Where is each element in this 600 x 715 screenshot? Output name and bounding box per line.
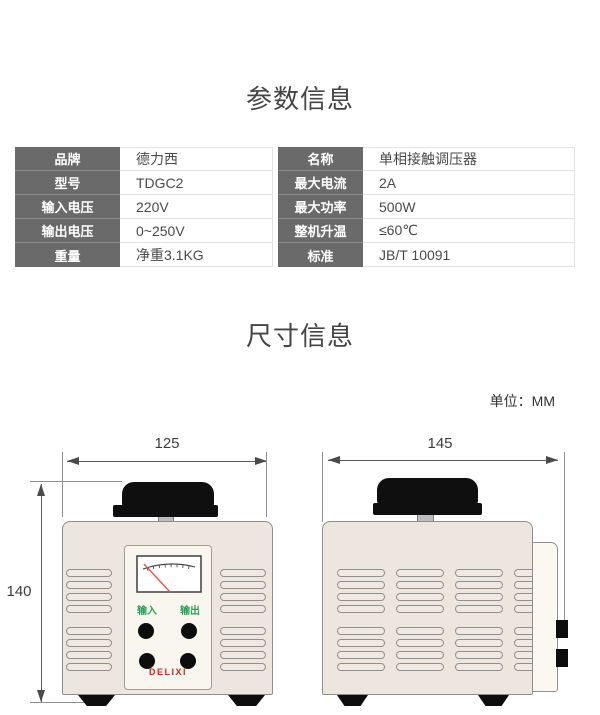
spec-label: 品牌 [15,147,120,171]
spec-value: 0~250V [120,219,273,243]
vent-slot [220,581,266,589]
spec-label: 型号 [15,171,120,195]
front-height-dim-label: 140 [2,583,36,600]
vent-slot [220,651,266,659]
spec-label: 重量 [15,243,120,267]
arrow-down-icon [37,690,45,702]
extension-line [266,452,267,517]
vent-slot [396,639,444,647]
vent-slot [337,593,385,601]
spec-value: ≤60℃ [363,219,575,243]
vent-slot [396,593,444,601]
vent-grid [337,569,385,671]
rear-terminal [556,649,568,667]
spec-table-right: 名称 单相接触调压器 最大电流 2A 最大功率 500W 整机升温 ≤60℃ 标… [278,147,575,267]
vent-slot [66,627,112,635]
vent-slot [514,593,532,601]
output-terminal-label: 输出 [174,602,206,617]
vent-slot [396,581,444,589]
vent-slot [337,663,385,671]
knob-flange [373,503,482,515]
vent-slot [396,605,444,613]
vent-slot [66,663,112,671]
vent-slot [396,651,444,659]
product-detail-page: 参数信息 品牌 德力西 型号 TDGC2 输入电压 220V 输出电压 0~25… [0,0,600,715]
vent-slot [455,639,503,647]
vent-slot [514,663,532,671]
table-row: 名称 单相接触调压器 [278,147,575,171]
vent-slot [337,605,385,613]
terminal-post [181,623,197,639]
brand-logo: DELIXI [124,667,212,677]
vent-slot [396,663,444,671]
arrow-left-icon [328,456,340,464]
extension-line [62,452,63,517]
vent-slot [66,581,112,589]
vent-slot [220,605,266,613]
spec-value: TDGC2 [120,171,273,195]
vent-slot [220,663,266,671]
vent-slot [66,593,112,601]
spec-label: 最大功率 [278,195,363,219]
device-foot [228,695,265,706]
vent-grid [396,569,444,671]
spec-value: JB/T 10091 [363,243,575,267]
vent-slot [455,663,503,671]
vent-slot [455,569,503,577]
vent-slot [514,639,532,647]
vent-slot [337,639,385,647]
vent-slot [220,639,266,647]
vent-grid [66,569,112,671]
spec-label: 输入电压 [15,195,120,219]
table-row: 品牌 德力西 [15,147,273,171]
vent-slot [66,639,112,647]
spec-value: 德力西 [120,147,273,171]
spec-value: 单相接触调压器 [363,147,575,171]
vent-slot [514,569,532,577]
knob-flange [113,505,218,517]
spec-label: 最大电流 [278,171,363,195]
spec-value: 220V [120,195,273,219]
dimension-line [328,460,558,461]
analog-meter [136,555,202,593]
table-row: 标准 JB/T 10091 [278,243,575,267]
vent-grid [514,569,532,671]
spec-label: 输出电压 [15,219,120,243]
vent-slot [514,651,532,659]
vent-slot [455,593,503,601]
extension-line [322,452,323,522]
vent-slot [514,605,532,613]
table-row: 型号 TDGC2 [15,171,273,195]
spec-value: 500W [363,195,575,219]
spec-label: 名称 [278,147,363,171]
dimensions-section-title: 尺寸信息 [0,316,600,353]
vent-slot [396,569,444,577]
dimension-line [67,461,267,462]
terminal-post [138,623,154,639]
spec-table-left: 品牌 德力西 型号 TDGC2 输入电压 220V 输出电压 0~250V 重量… [15,147,273,267]
extension-line [30,481,122,482]
vent-slot [455,627,503,635]
spec-label: 标准 [278,243,363,267]
vent-slot [66,605,112,613]
vent-slot [514,627,532,635]
rear-panel [531,542,558,692]
vent-slot [220,627,266,635]
spec-table: 品牌 德力西 型号 TDGC2 输入电压 220V 输出电压 0~250V 重量… [15,147,575,267]
spec-value: 净重3.1KG [120,243,273,267]
vent-slot [396,627,444,635]
knob [377,478,478,504]
side-depth-dim-label: 145 [410,435,470,452]
table-row: 最大电流 2A [278,171,575,195]
vent-slot [455,605,503,613]
input-terminal-label: 输入 [131,602,163,617]
vent-slot [337,581,385,589]
table-row: 整机升温 ≤60℃ [278,219,575,243]
vent-slot [66,569,112,577]
arrow-right-icon [546,456,558,464]
vent-slot [220,569,266,577]
spec-label: 整机升温 [278,219,363,243]
device-foot [478,695,509,706]
device-foot [337,695,368,706]
arrow-left-icon [67,457,79,465]
dimension-line [41,484,42,702]
vent-slot [514,581,532,589]
arrow-up-icon [37,484,45,496]
front-width-dim-label: 125 [137,435,197,452]
table-row: 输入电压 220V [15,195,273,219]
params-section-title: 参数信息 [0,79,600,116]
rear-terminal [556,620,568,638]
vent-slot [337,627,385,635]
knob [122,482,214,507]
meter-frame [137,556,201,592]
vent-slot [66,651,112,659]
vent-slot [455,651,503,659]
table-row: 重量 净重3.1KG [15,243,273,267]
extension-line [564,452,565,620]
unit-label: 单位：MM [490,391,555,411]
vent-grid [455,569,503,671]
table-row: 输出电压 0~250V [15,219,273,243]
vent-grid [220,569,266,671]
vent-slot [220,593,266,601]
device-foot [78,695,115,706]
vent-slot [455,581,503,589]
table-row: 最大功率 500W [278,195,575,219]
vent-slot [337,651,385,659]
vent-slot [337,569,385,577]
spec-value: 2A [363,171,575,195]
